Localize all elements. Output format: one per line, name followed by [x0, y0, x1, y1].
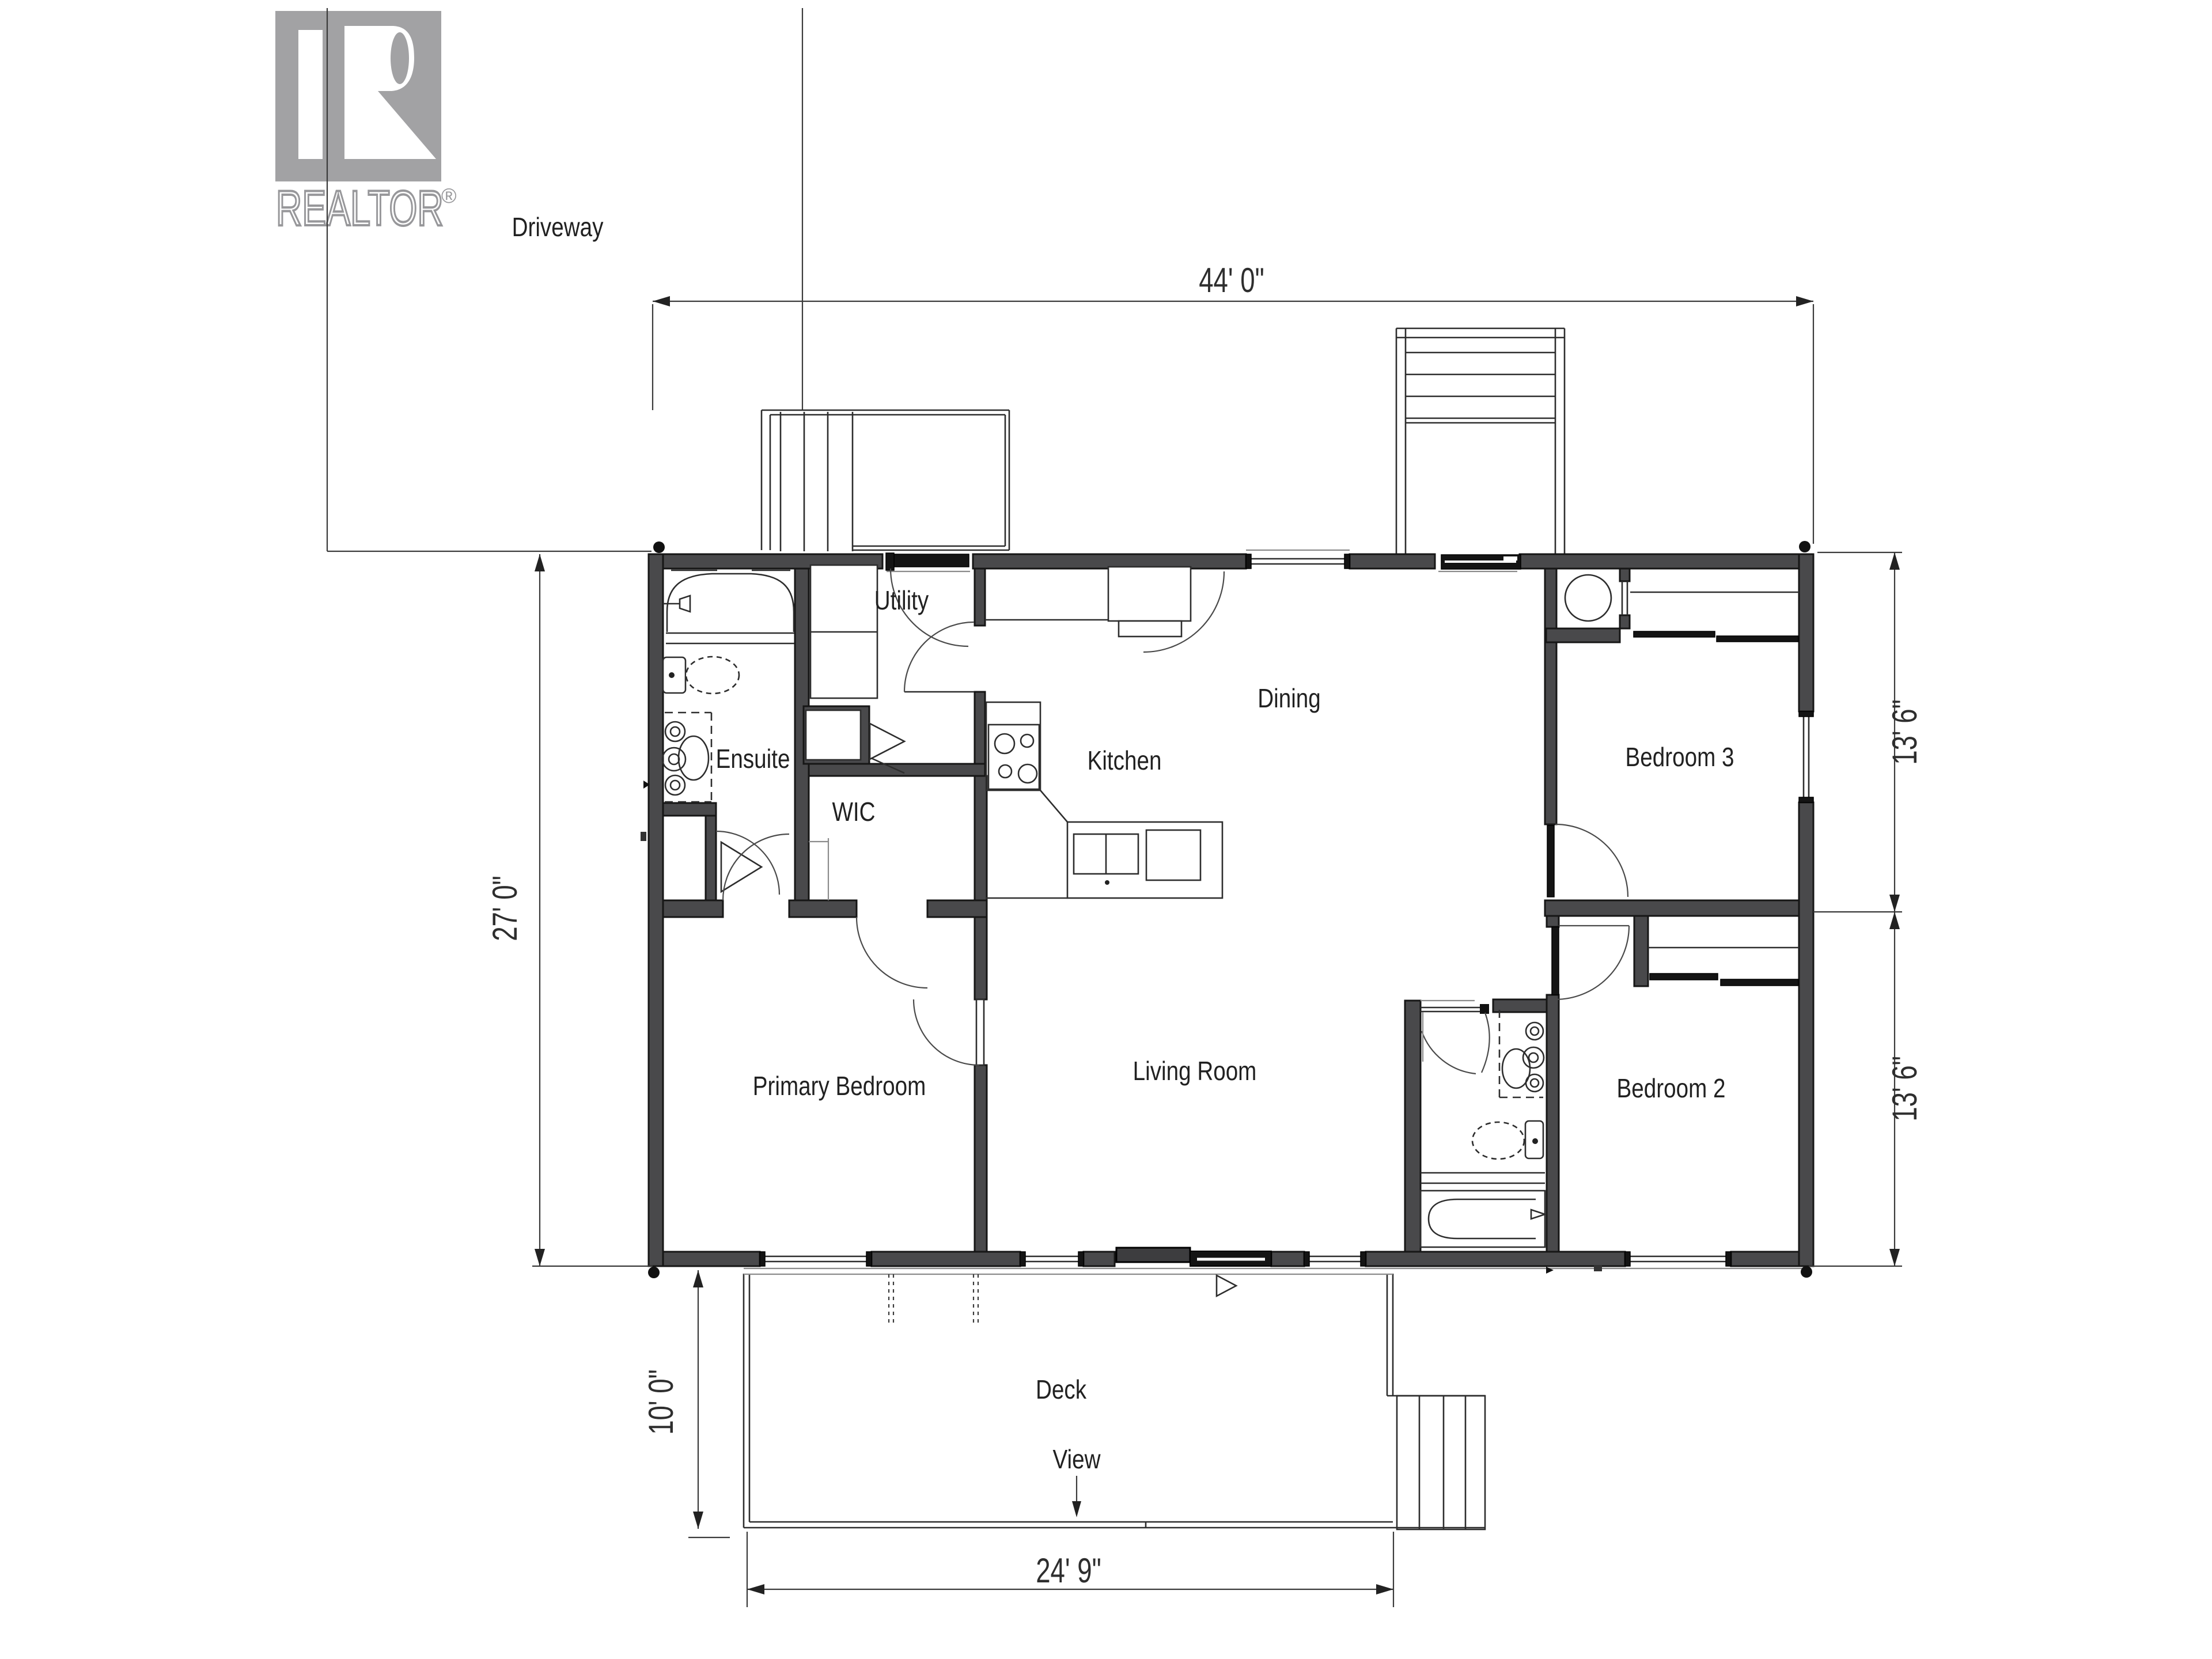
- svg-text:View: View: [1052, 1445, 1100, 1474]
- svg-text:®: ®: [441, 184, 457, 207]
- svg-text:REALTOR: REALTOR: [276, 180, 444, 236]
- svg-text:Living Room: Living Room: [1133, 1056, 1257, 1086]
- svg-text:Driveway: Driveway: [512, 213, 604, 242]
- svg-text:Primary Bedroom: Primary Bedroom: [753, 1071, 926, 1101]
- svg-text:13' 6": 13' 6": [1886, 1056, 1924, 1122]
- svg-text:13' 6": 13' 6": [1886, 699, 1924, 765]
- svg-text:27' 0": 27' 0": [486, 876, 524, 941]
- svg-text:10' 0": 10' 0": [642, 1369, 680, 1435]
- svg-text:Dining: Dining: [1257, 684, 1321, 713]
- svg-text:Ensuite: Ensuite: [716, 744, 790, 774]
- svg-text:24' 9": 24' 9": [1036, 1552, 1101, 1590]
- svg-text:Deck: Deck: [1036, 1375, 1087, 1404]
- svg-text:44' 0": 44' 0": [1199, 262, 1264, 300]
- svg-text:Bedroom 3: Bedroom 3: [1626, 743, 1734, 772]
- svg-text:Utility: Utility: [874, 586, 929, 615]
- svg-text:Kitchen: Kitchen: [1088, 746, 1162, 775]
- svg-text:Bedroom 2: Bedroom 2: [1617, 1074, 1726, 1103]
- svg-text:WIC: WIC: [832, 797, 875, 827]
